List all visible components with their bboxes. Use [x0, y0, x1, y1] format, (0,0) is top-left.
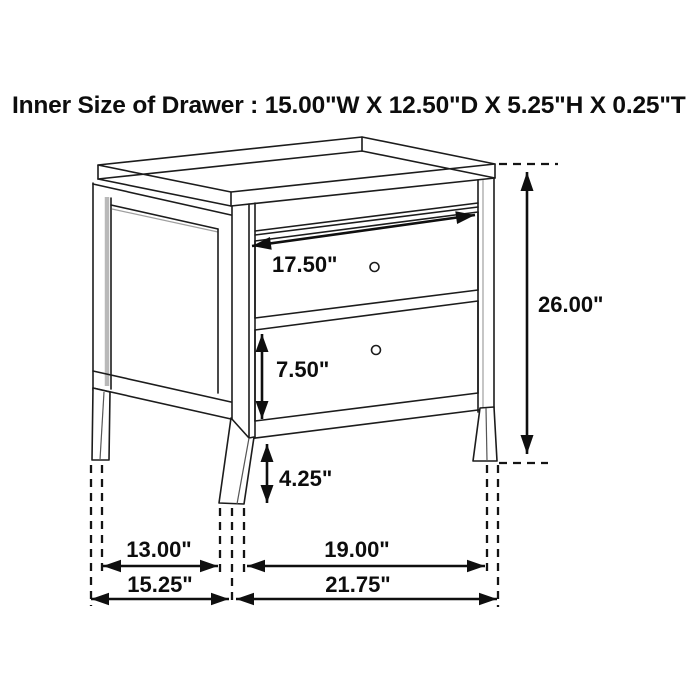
dimension-label-side-depth-overall: 15.25" [127, 572, 192, 597]
top-drawer-knob [370, 263, 379, 272]
dimension-label-front-width-inner: 19.00" [324, 537, 389, 562]
dimension-label-side-depth-inner: 13.00" [126, 537, 191, 562]
dimension-bottom-drawer-height: 7.50" [256, 334, 330, 419]
dimension-label-bottom-drawer-height: 7.50" [276, 357, 329, 382]
bottom-drawer-knob [372, 346, 381, 355]
left-side-panel [93, 183, 231, 419]
nightstand-drawing [92, 137, 497, 504]
dimension-front-width-overall: 21.75" [236, 572, 497, 605]
back-left-leg [92, 388, 110, 460]
dimension-label-drawer-width: 17.50" [272, 252, 337, 277]
dimension-label-overall-height: 26.00" [538, 292, 603, 317]
front-right-leg [473, 407, 497, 461]
dimension-label-front-width-overall: 21.75" [325, 572, 390, 597]
dimension-leg-clearance: 4.25" [261, 444, 333, 503]
nightstand-diagram-canvas: 17.50" 26.00" 7.50" 4.25" [0, 0, 700, 700]
dimension-label-leg-clearance: 4.25" [279, 466, 332, 491]
dimension-side-depth-inner: 13.00" [103, 537, 218, 572]
furniture-dimension-diagram: Inner Size of Drawer : 15.00"W X 12.50"D… [0, 0, 700, 700]
table-top [98, 137, 495, 206]
dimension-annotations: 17.50" 26.00" 7.50" 4.25" [91, 164, 603, 607]
dimension-side-depth-overall: 15.25" [91, 572, 229, 605]
dimension-overall-height: 26.00" [521, 172, 604, 454]
dimension-front-width-inner: 19.00" [247, 537, 485, 572]
